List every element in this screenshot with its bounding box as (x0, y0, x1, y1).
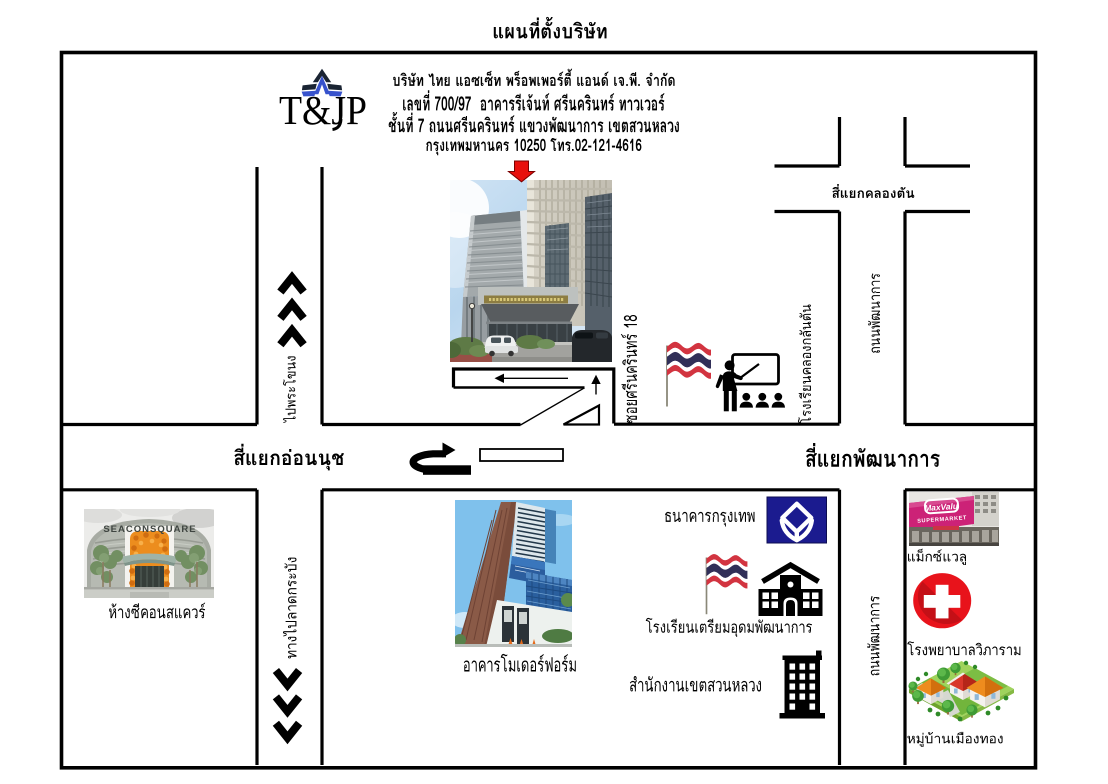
svg-text:T&JP: T&JP (279, 87, 367, 133)
svg-text:SEACONSQUARE: SEACONSQUARE (103, 524, 196, 535)
